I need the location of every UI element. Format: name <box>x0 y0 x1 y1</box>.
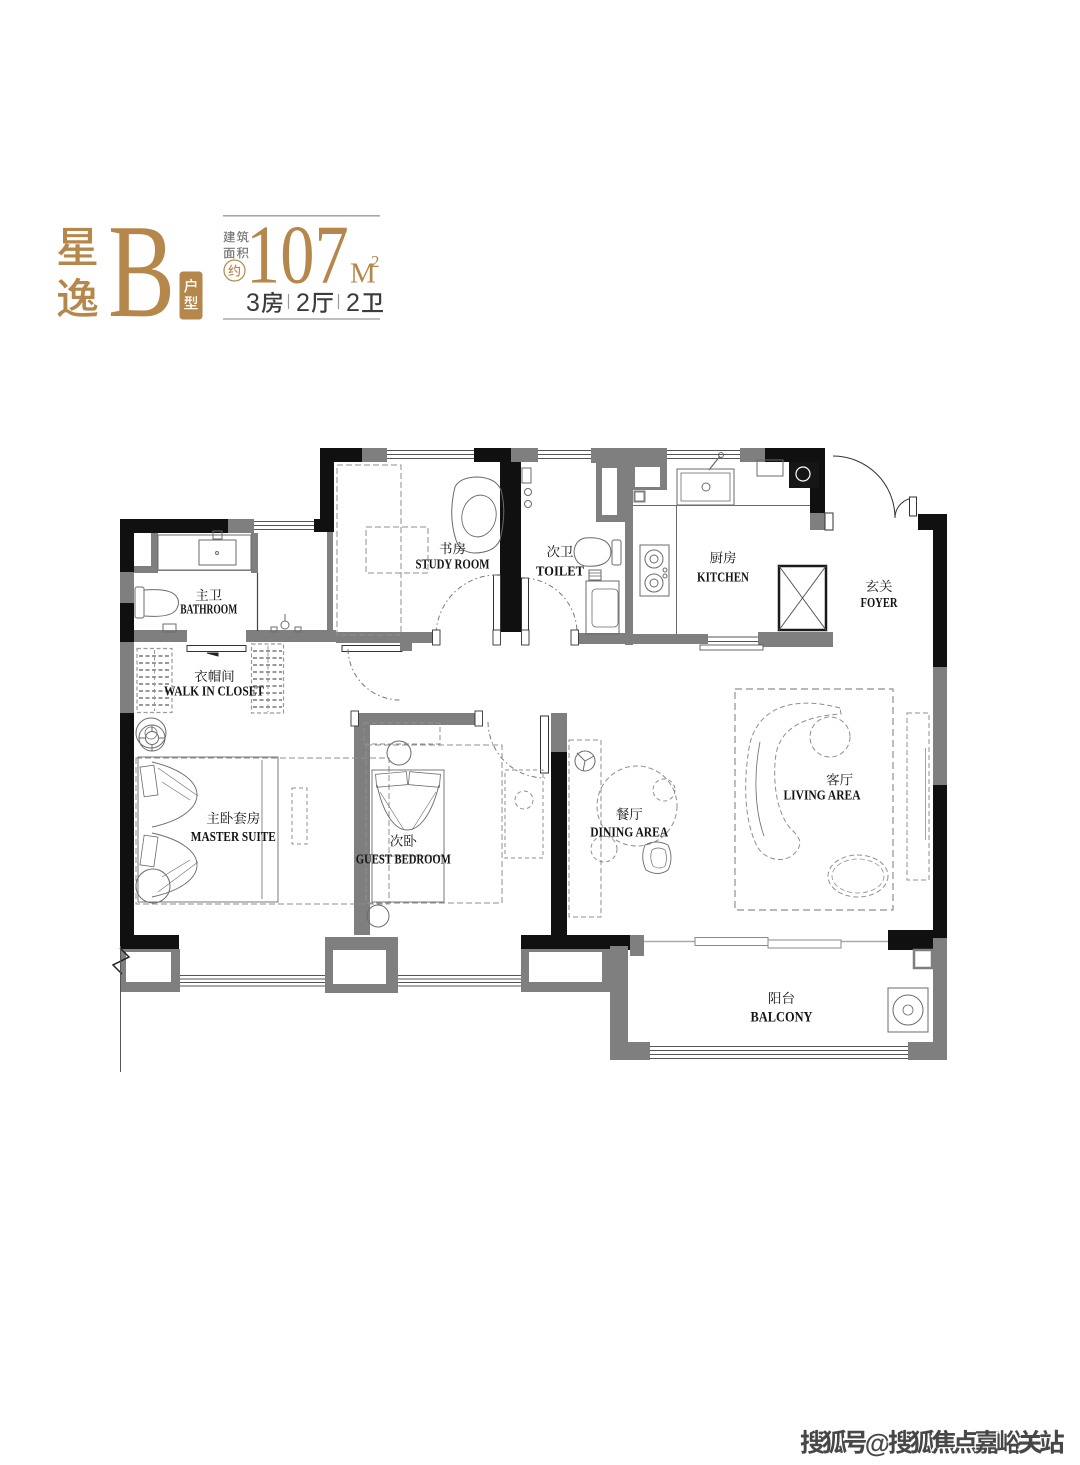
svg-text:STUDY ROOM: STUDY ROOM <box>416 557 490 572</box>
svg-text:3: 3 <box>246 289 260 317</box>
svg-text:KITCHEN: KITCHEN <box>697 571 749 586</box>
svg-text:TOILET: TOILET <box>536 564 585 579</box>
svg-text:107: 107 <box>246 208 349 301</box>
svg-text:2: 2 <box>371 252 380 271</box>
svg-text:2: 2 <box>346 289 360 317</box>
svg-text:FOYER: FOYER <box>861 596 899 611</box>
svg-text:DINING AREA: DINING AREA <box>590 826 669 841</box>
svg-text:2: 2 <box>296 289 310 317</box>
svg-text:GUEST BEDROOM: GUEST BEDROOM <box>356 853 451 868</box>
svg-text:LIVING AREA: LIVING AREA <box>784 789 862 804</box>
svg-text:WALK IN CLOSET: WALK IN CLOSET <box>164 684 265 699</box>
svg-text:BALCONY: BALCONY <box>751 1010 813 1026</box>
svg-text:@: @ <box>865 1428 890 1458</box>
svg-text:MASTER SUITE: MASTER SUITE <box>191 830 276 845</box>
svg-text:B: B <box>108 196 175 345</box>
svg-text:BATHROOM: BATHROOM <box>180 603 237 618</box>
